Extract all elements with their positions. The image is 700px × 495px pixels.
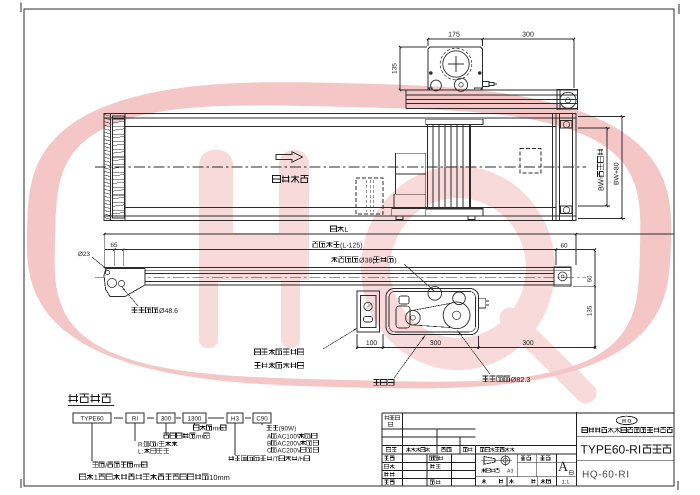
svg-text:H Q: H Q xyxy=(622,419,631,425)
svg-text:300: 300 xyxy=(430,340,442,347)
svg-text:Ø48.6: Ø48.6 xyxy=(159,307,178,315)
svg-text:1300: 1300 xyxy=(188,416,202,423)
svg-text:60: 60 xyxy=(560,243,568,250)
svg-text:/T: /T xyxy=(273,456,279,463)
svg-text:135: 135 xyxy=(392,63,399,74)
svg-text:60: 60 xyxy=(587,275,594,283)
svg-text:A: A xyxy=(558,460,569,475)
svg-text:100: 100 xyxy=(366,340,378,347)
svg-text:(L-125): (L-125) xyxy=(340,242,363,250)
svg-text:TYPE60-RI: TYPE60-RI xyxy=(581,443,642,457)
svg-text:HQ-60-RI: HQ-60-RI xyxy=(582,470,630,481)
svg-text:300: 300 xyxy=(161,416,172,423)
svg-text:Ø38(: Ø38( xyxy=(359,257,375,265)
svg-text:L: L xyxy=(344,225,348,234)
svg-text:Ø82.3: Ø82.3 xyxy=(511,375,531,384)
svg-text:mm: mm xyxy=(213,426,224,433)
svg-text:AC100V: AC100V xyxy=(277,434,302,441)
svg-text:A3: A3 xyxy=(507,469,513,475)
svg-text:10mm: 10mm xyxy=(209,473,230,482)
svg-text:AC200V: AC200V xyxy=(277,448,302,455)
svg-text:1:1: 1:1 xyxy=(562,480,570,486)
svg-text:BW+80: BW+80 xyxy=(614,162,621,185)
svg-text:AC200V: AC200V xyxy=(277,441,302,448)
svg-text:TYPE60: TYPE60 xyxy=(80,416,104,423)
svg-text:RI: RI xyxy=(132,416,138,423)
svg-text:135: 135 xyxy=(587,305,594,316)
svg-text:mm: mm xyxy=(196,434,207,441)
svg-text:R:: R: xyxy=(138,442,145,449)
svg-text:65: 65 xyxy=(110,242,118,249)
svg-text:C90: C90 xyxy=(256,416,268,423)
svg-text:300: 300 xyxy=(522,32,534,39)
svg-text:): ) xyxy=(394,257,396,265)
svg-text:/: / xyxy=(105,463,107,470)
svg-text:BW=: BW= xyxy=(597,175,606,191)
svg-text:L:: L: xyxy=(138,449,144,456)
svg-text:H3: H3 xyxy=(231,416,239,423)
svg-text:B: B xyxy=(267,441,271,448)
svg-text:/: / xyxy=(157,442,159,449)
svg-text:(90W): (90W) xyxy=(279,426,296,433)
svg-text:/H: /H xyxy=(298,456,305,463)
svg-text:175: 175 xyxy=(448,32,460,39)
svg-text:Ø23: Ø23 xyxy=(78,251,90,258)
svg-text:mm: mm xyxy=(134,463,145,470)
svg-text:300: 300 xyxy=(522,340,534,347)
